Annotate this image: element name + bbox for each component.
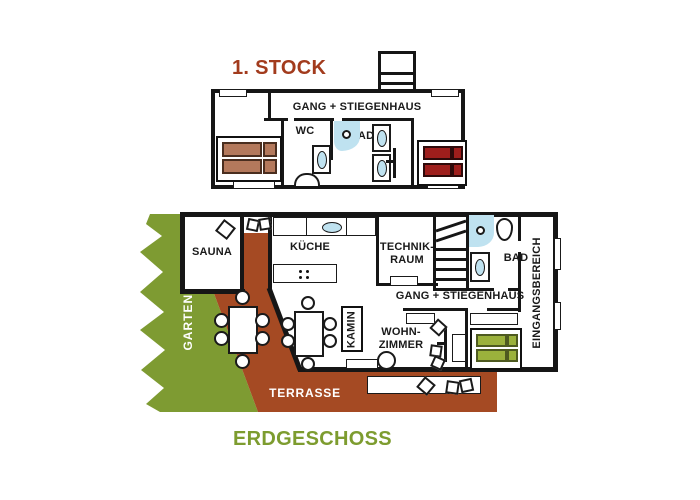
living-line1: WOHN- [381,326,421,338]
window-icon [554,238,561,270]
living-line2: ZIMMER [379,339,424,351]
terrace-label: TERRASSE [260,386,350,400]
door-leaf-icon [393,148,396,178]
counter-divider [346,218,347,235]
sideboard-icon [406,313,435,324]
basin [475,259,485,276]
basin [317,151,327,169]
stove-burner [299,276,302,279]
basin [377,130,387,147]
sink-icon [372,154,391,182]
chair-icon [323,334,337,348]
sauna-label: SAUNA [186,246,238,259]
chair-icon [301,357,315,371]
fireplace-box: KAMIN [341,306,363,352]
ground-corridor-label: GANG + STIEGENHAUS [380,290,540,303]
stove-burner [306,270,309,273]
chair-icon [235,354,250,369]
chair-icon [258,217,272,231]
chair-icon [255,331,270,346]
stair-tread [436,258,466,261]
pillow [263,159,277,174]
door-leaf-icon [444,328,447,362]
kitchen-island-icon [273,264,337,283]
double-bed-icon [216,136,282,182]
double-bed-icon [417,140,467,186]
chair-icon [214,313,229,328]
window-icon [219,89,247,97]
mattress [222,159,262,174]
bench-icon [346,359,378,369]
shower-head [342,130,351,139]
wall [294,118,334,121]
wc-label: WC [288,125,322,138]
wall [411,118,414,186]
stove-burner [306,276,309,279]
exterior-stairs-icon [378,51,416,93]
side-table-icon [377,351,396,370]
stair-tread [436,268,466,271]
technik-line1: TECHNIK- [380,241,434,253]
garden-label: GARTEN [181,286,195,358]
stair-tread [381,82,413,85]
chair-icon [459,378,474,393]
outdoor-table-icon [228,306,258,354]
chair-icon [214,331,229,346]
kitchen-counter-icon [273,217,376,236]
mattress [476,334,507,347]
chair-icon [281,317,295,331]
shower-head [476,226,485,235]
chair-icon [445,380,460,395]
kitchen-sink-icon [322,222,342,233]
mattress [423,163,452,177]
pillow [507,349,518,362]
kitchen-label: KÜCHE [275,241,345,254]
sink-icon [372,124,391,152]
wall [553,212,558,372]
technik-raum-label: TECHNIK- RAUM [372,241,442,267]
pillow [507,334,518,347]
chair-icon [281,334,295,348]
kamin-label: KAMIN [345,308,358,352]
wall [264,118,288,121]
window-icon [431,89,459,97]
pillow [452,146,463,160]
wall [487,308,518,311]
chair-icon [301,296,315,310]
mattress [423,146,452,160]
living-room-label: WOHN- ZIMMER [366,326,436,352]
wall [268,91,271,120]
stair-tread [436,248,466,251]
counter-divider [306,218,307,235]
background-shapes [0,0,700,500]
mattress [222,142,262,157]
wardrobe-icon [470,313,518,325]
stove-burner [299,270,302,273]
stair-tread [436,278,466,281]
stair-tread [381,72,413,75]
sink-icon [470,252,490,282]
dining-table-icon [294,311,324,357]
chair-icon [323,317,337,331]
chair-icon [235,290,250,305]
door-icon [390,276,418,286]
wall [240,212,244,292]
door-handle-icon [386,160,394,163]
window-icon [554,302,561,330]
technik-line2: RAUM [390,254,424,266]
wall [180,212,185,294]
desk-icon [452,334,466,362]
double-bed-icon [470,328,522,370]
floorplan-canvas: 1. STOCK GANG + STIEGENHAUS WC BAD [0,0,700,500]
pillow [263,142,277,157]
first-floor-title: 1. STOCK [232,57,326,80]
wall [403,308,467,311]
wall [518,215,521,241]
sink-icon [312,145,331,174]
pillow [452,163,463,177]
mattress [476,349,507,362]
ground-floor-title: ERDGESCHOSS [233,428,392,451]
window-icon [233,181,275,189]
first-corridor-label: GANG + STIEGENHAUS [277,101,437,114]
chair-icon [255,313,270,328]
